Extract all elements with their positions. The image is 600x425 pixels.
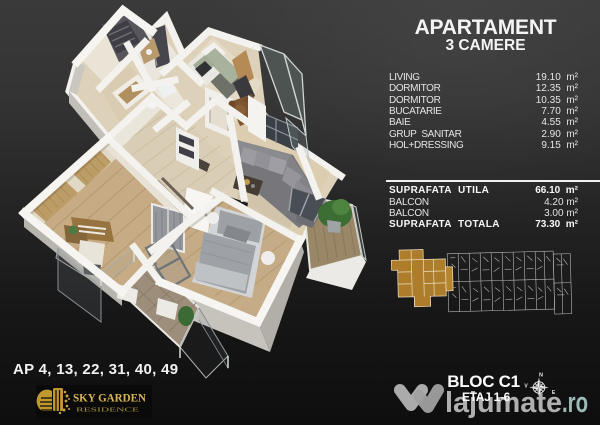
svg-text:N: N (539, 373, 543, 379)
svg-text:RESIDENCE: RESIDENCE (76, 407, 139, 414)
svg-text:SKY GARDEN: SKY GARDEN (73, 391, 146, 405)
svg-text:.ro: .ro (562, 387, 588, 419)
